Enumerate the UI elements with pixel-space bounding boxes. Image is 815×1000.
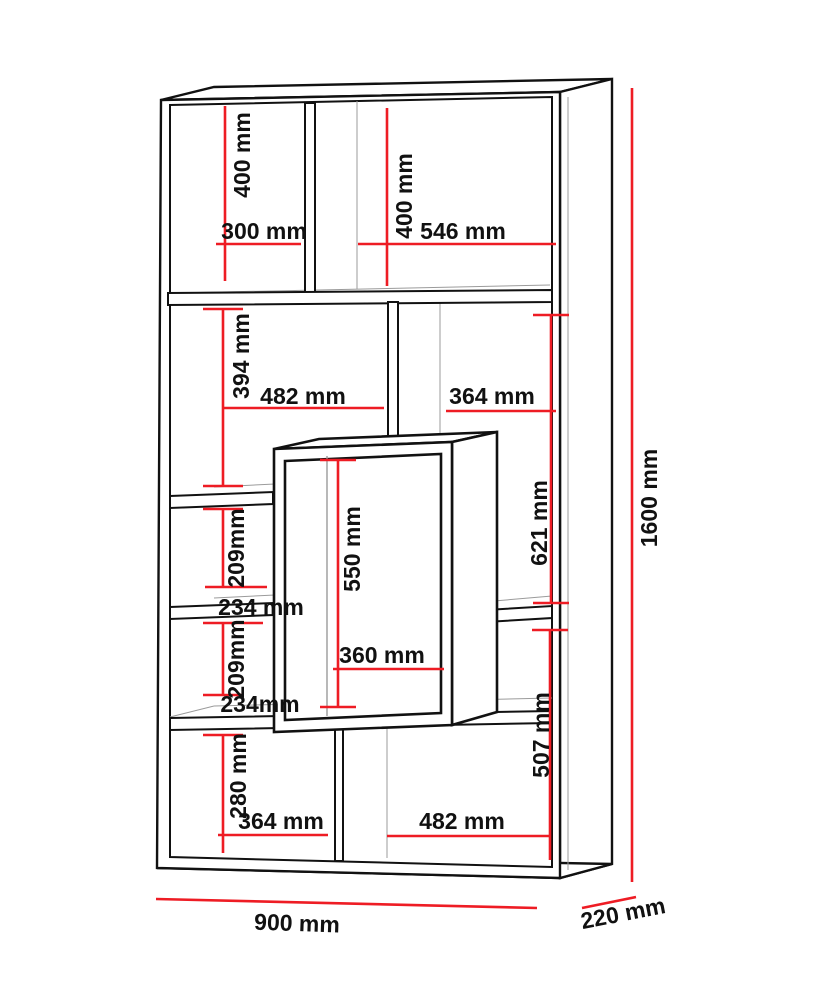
mid-divider xyxy=(388,302,398,437)
dim-label-507: 507 mm xyxy=(528,692,554,778)
dim-label-300: 300 mm xyxy=(221,218,307,244)
dim-label-364-mid: 364 mm xyxy=(449,383,535,409)
diagram-page: 400 mm 300 mm 400 mm 546 mm 394 mm 482 m… xyxy=(0,0,815,1000)
center-box xyxy=(274,432,497,732)
dim-label-621: 621 mm xyxy=(526,480,552,566)
dim-label-234-upper: 234 mm xyxy=(218,594,304,620)
dim-label-280: 280 mm xyxy=(225,733,251,819)
dim-label-364-bottom: 364 mm xyxy=(238,808,324,834)
dim-label-482-mid: 482 mm xyxy=(260,383,346,409)
bookshelf-dimension-drawing: 400 mm 300 mm 400 mm 546 mm 394 mm 482 m… xyxy=(0,0,815,1000)
dim-label-234-lower: 234mm xyxy=(220,691,299,717)
dim-label-482-bottom: 482 mm xyxy=(419,808,505,834)
dim-label-550: 550 mm xyxy=(339,506,365,592)
dim-label-400-top-left: 400 mm xyxy=(229,112,255,198)
low-divider xyxy=(335,727,343,861)
dim-label-209-upper: 209mm xyxy=(223,508,249,587)
dim-label-400-top-right: 400 mm xyxy=(391,153,417,239)
center-box-right-face xyxy=(452,432,497,725)
top-divider xyxy=(305,103,315,296)
dim-label-394: 394 mm xyxy=(228,313,254,399)
dim-label-360: 360 mm xyxy=(339,642,425,668)
dim-label-546: 546 mm xyxy=(420,218,506,244)
dim-line-900 xyxy=(156,899,537,908)
dim-label-209-lower: 209mm xyxy=(223,619,249,698)
dim-label-1600: 1600 mm xyxy=(636,449,662,547)
shelf-a xyxy=(168,290,552,305)
shelf-b-left xyxy=(170,492,273,508)
dim-label-900: 900 mm xyxy=(254,909,341,938)
